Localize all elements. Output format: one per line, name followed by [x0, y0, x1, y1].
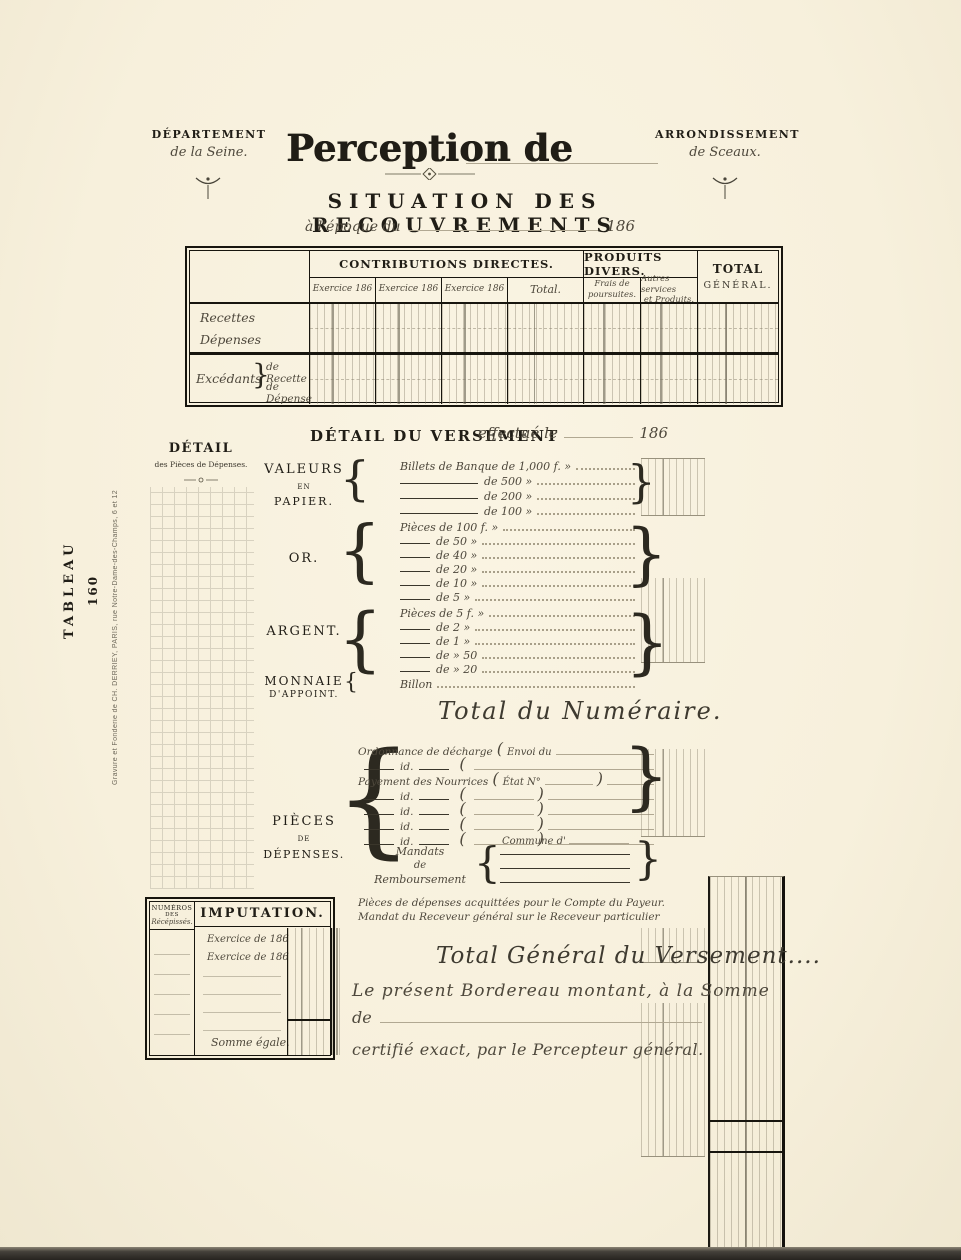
or-row-label: de 5 »: [436, 591, 470, 604]
leader-dots: [482, 571, 635, 573]
arrondissement-value: de Sceaux.: [655, 145, 795, 160]
epoque-prefix: à l'époque du: [305, 219, 401, 235]
amount-cell: [376, 304, 442, 352]
total-general-line: Total Général du Versement....: [436, 943, 708, 969]
leader-dots: [475, 629, 635, 631]
mandats-l3: Remboursement: [370, 873, 470, 886]
effectue-blank: [564, 437, 634, 438]
corner-cell: [190, 251, 310, 304]
col-autres-l1: Autres services: [641, 274, 697, 295]
leader-dots: [482, 657, 635, 659]
amount-cell: [698, 304, 778, 352]
mandats-l2: de: [370, 860, 470, 871]
leader-dots: [437, 686, 635, 688]
effectue-year: 186: [639, 424, 668, 442]
ditto-rule: [400, 543, 430, 544]
total-general-label: Total Général du Versement....: [436, 943, 821, 969]
papier-row: Billets de Banque de 1,000 f. »: [400, 460, 640, 473]
billon-row: Billon: [400, 678, 640, 691]
or-row: Pièces de 100 f. »: [400, 521, 640, 534]
category-argent: ARGENT.: [260, 624, 348, 639]
bordereau-line-3: certifié exact, par le Percepteur généra…: [352, 1040, 704, 1059]
leader-dots: [537, 498, 635, 500]
billon-label: Billon: [400, 678, 432, 691]
or-row-label: de 10 »: [436, 577, 477, 590]
total-amount-column: [708, 876, 785, 1260]
imputation-exercice-1: Exercice de 186: [207, 934, 289, 945]
arrondissement-label: ARRONDISSEMENT: [655, 128, 795, 141]
dash-row: [154, 954, 190, 955]
leader-dots: [537, 513, 635, 515]
amount-cell: [310, 355, 376, 404]
epoque-year: 186: [606, 217, 635, 235]
bordereau-de-label: de: [352, 1008, 372, 1027]
brace-argent: [338, 604, 383, 674]
sidebar-tableau-number: 160: [86, 545, 100, 635]
fill-blank: [569, 843, 629, 844]
or-row: de 50 »: [400, 535, 640, 548]
ditto-rule: [400, 571, 430, 572]
valeurs-l2: EN: [260, 483, 348, 491]
row-label-excedants-depense: de Dépense: [266, 381, 312, 405]
mandat-rule: [500, 882, 630, 883]
monnaie-l1: MONNAIE: [254, 674, 354, 688]
ditto-rule: [400, 585, 430, 586]
bordereau-line-1: Le présent Bordereau montant, à la Somme: [352, 981, 770, 1001]
numeros-l1: NUMÉROS: [150, 904, 194, 912]
brace-commune-close: [634, 838, 662, 882]
category-or: OR.: [260, 551, 348, 566]
imputation-main: IMPUTATION. Exercice de 186 Exercice de …: [195, 902, 330, 1055]
acquittees-line-2: Mandat du Receveur général sur le Receve…: [358, 911, 660, 923]
mandats-l1: Mandats: [370, 845, 470, 858]
argent-row: de 1 »: [400, 635, 640, 648]
ditto-rule: [400, 498, 478, 499]
rows-labels-block1: Recettes Dépenses: [190, 304, 310, 352]
brace-mandats: [474, 842, 501, 884]
or-row-label: Pièces de 100 f. »: [400, 521, 498, 534]
dash-row: [154, 1034, 190, 1035]
valeurs-l3: PAPIER.: [260, 495, 348, 508]
brace-or: [338, 518, 381, 586]
category-valeurs-papier: VALEURS EN PAPIER.: [260, 462, 348, 508]
col-total: Total.: [508, 278, 584, 304]
ditto-rule: [400, 657, 430, 658]
ditto-rule: [400, 599, 430, 600]
detail-pieces-grid: [150, 487, 254, 889]
total-general-header: TOTAL GÉNÉRAL.: [698, 251, 778, 304]
rows-labels-block2: Excédants de Recette de Dépense: [190, 355, 310, 404]
papier-row-label: de 200 »: [484, 490, 532, 503]
mandat-rule: [500, 868, 630, 869]
amount-cell: [584, 355, 641, 404]
dash-row: [203, 1012, 281, 1013]
perception-blank-line: [466, 163, 658, 164]
center-ornament-icon: [385, 168, 475, 180]
epoque-blank: [409, 230, 599, 231]
papier-row: de 100 »: [400, 505, 640, 518]
brace-papier: [340, 456, 370, 503]
acquittees-line-1: Pièces de dépenses acquittées pour le Co…: [358, 897, 665, 909]
imputation-amount-col: [287, 928, 325, 1055]
argent-row: de » 50: [400, 649, 640, 662]
amount-cell: [641, 355, 698, 404]
total-numeraire-label: Total du Numéraire.: [438, 697, 722, 725]
column-divider: [710, 1120, 782, 1122]
leader-dots: [475, 643, 635, 645]
detail-pieces-subtitle: des Pièces de Dépenses.: [147, 460, 255, 469]
dash-row: [203, 1030, 281, 1031]
leader-dots: [475, 599, 635, 601]
or-row: de 40 »: [400, 549, 640, 562]
amount-cell: [376, 355, 442, 404]
papier-row-label: de 500 »: [484, 475, 532, 488]
ditto-rule: [400, 557, 430, 558]
total-numeraire-line: Total du Numéraire.: [438, 697, 640, 725]
row-label-depenses: Dépenses: [200, 332, 261, 347]
department-block: DÉPARTEMENT de la Seine.: [150, 128, 268, 160]
column-brace: [623, 740, 669, 813]
amount-cell: [310, 304, 376, 352]
col-frais: Frais de poursuites.: [584, 278, 641, 304]
effectue-prefix: effectué le: [478, 424, 558, 442]
column-brace: [627, 459, 656, 504]
col-exercice-1: Exercice 186: [310, 278, 376, 304]
ditto-rule: [400, 513, 478, 514]
department-label: DÉPARTEMENT: [150, 128, 268, 141]
imputation-title: IMPUTATION.: [195, 902, 330, 927]
argent-row-label: de » 50: [436, 649, 477, 662]
amount-cell: [508, 304, 584, 352]
dash-row: [154, 994, 190, 995]
versement-effectue-line: effectué le 186: [478, 424, 668, 442]
total-general-line1: TOTAL: [713, 262, 763, 276]
detail-pieces-header: DÉTAIL des Pièces de Dépenses.: [147, 441, 255, 488]
column-divider: [710, 1151, 782, 1153]
detail-pieces-title: DÉTAIL: [147, 441, 255, 456]
dash-row: [203, 976, 281, 977]
numeros-header: NUMÉROS DES Récépissés.: [150, 902, 194, 930]
valeurs-l1: VALEURS: [260, 462, 348, 477]
col-exercice-2: Exercice 186: [376, 278, 442, 304]
col-frais-l1: Frais de: [594, 279, 629, 290]
dash-row: [154, 974, 190, 975]
category-monnaie: MONNAIE D'APPOINT.: [254, 674, 354, 700]
imputation-amount-col-narrow: [331, 928, 344, 1055]
or-row: de 20 »: [400, 563, 640, 576]
ditto-rule: [400, 483, 478, 484]
leader-dots: [503, 529, 635, 531]
col-frais-l2: poursuites.: [588, 290, 636, 301]
detail-ornament-icon: [184, 476, 218, 484]
mandats-block: Mandats de Remboursement: [370, 845, 470, 886]
or-row-label: de 40 »: [436, 549, 477, 562]
argent-row: de » 20: [400, 663, 640, 676]
argent-row-label: de 1 »: [436, 635, 470, 648]
fleuron-right-icon: [710, 172, 740, 202]
bordereau-line-2: de: [352, 1008, 702, 1027]
papier-row: de 500 »: [400, 475, 640, 488]
amount-cell: [698, 355, 778, 404]
argent-row-label: de 2 »: [436, 621, 470, 634]
commune-label: Commune d': [502, 836, 566, 847]
leader-dots: [482, 671, 635, 673]
imputation-exercice-2: Exercice de 186: [207, 952, 289, 963]
column-brace: [625, 607, 670, 677]
leader-dots: [537, 483, 635, 485]
or-row-label: de 20 »: [436, 563, 477, 576]
sidebar-tableau-label: TABLEAU: [62, 500, 77, 680]
column-brace: [625, 521, 668, 588]
brace-monnaie: [344, 672, 358, 694]
printer-credit: Gravure et Fonderie de CH. DERRIEY, PARI…: [112, 465, 119, 785]
amount-cell: [508, 355, 584, 404]
papier-row-label: Billets de Banque de 1,000 f. »: [400, 460, 571, 473]
argent-row: Pièces de 5 f. »: [400, 607, 640, 620]
department-value: de la Seine.: [150, 145, 268, 160]
or-row-label: de 50 »: [436, 535, 477, 548]
ditto-rule: [400, 643, 430, 644]
imputation-table: NUMÉROS DES Récépissés. IMPUTATION. Exer…: [145, 897, 335, 1060]
argent-row-label: de » 20: [436, 663, 477, 676]
dash-row: [154, 1014, 190, 1015]
leader-dots: [482, 543, 635, 545]
col-exercice-3: Exercice 186: [442, 278, 508, 304]
imputation-body: Exercice de 186 Exercice de 186 Somme ég…: [195, 928, 330, 1055]
scan-edge-strip: [0, 1247, 961, 1260]
imputation-somme: Somme égale.: [211, 1036, 290, 1049]
row-label-recettes: Recettes: [200, 310, 255, 325]
recouvrements-table: CONTRIBUTIONS DIRECTES. PRODUITS DIVERS.…: [185, 246, 783, 407]
group-contributions: CONTRIBUTIONS DIRECTES.: [310, 251, 584, 278]
commune-line: Commune d': [502, 836, 632, 847]
leader-dots: [489, 615, 635, 617]
somme-divider: [287, 1019, 330, 1021]
leader-dots: [482, 557, 635, 559]
total-general-line2: GÉNÉRAL.: [703, 280, 772, 291]
numeros-l3: Récépissés.: [150, 918, 194, 926]
amount-cell: [584, 304, 641, 352]
leader-dots: [482, 585, 635, 587]
col-autres: Autres services et Produits.: [641, 278, 698, 304]
ditto-rule: [400, 629, 430, 630]
epoque-line: à l'époque du 186: [305, 217, 635, 235]
argent-row: de 2 »: [400, 621, 640, 634]
amount-cell: [442, 355, 508, 404]
or-row: de 5 »: [400, 591, 640, 604]
dash-row: [203, 994, 281, 995]
ditto-rule: [400, 671, 430, 672]
argent-row-label: Pièces de 5 f. »: [400, 607, 484, 620]
papier-row: de 200 »: [400, 490, 640, 503]
somme-blank: [380, 1022, 702, 1023]
mandat-rule: [500, 854, 630, 855]
papier-row-label: de 100 »: [484, 505, 532, 518]
numeros-column: NUMÉROS DES Récépissés.: [150, 902, 195, 1055]
amount-cell: [442, 304, 508, 352]
monnaie-l2: D'APPOINT.: [254, 690, 354, 700]
or-row: de 10 »: [400, 577, 640, 590]
fleuron-left-icon: [193, 172, 223, 202]
arrondissement-block: ARRONDISSEMENT de Sceaux.: [655, 128, 795, 160]
scanned-form-page: DÉPARTEMENT de la Seine. Perception de A…: [0, 0, 961, 1260]
amount-cell: [641, 304, 698, 352]
